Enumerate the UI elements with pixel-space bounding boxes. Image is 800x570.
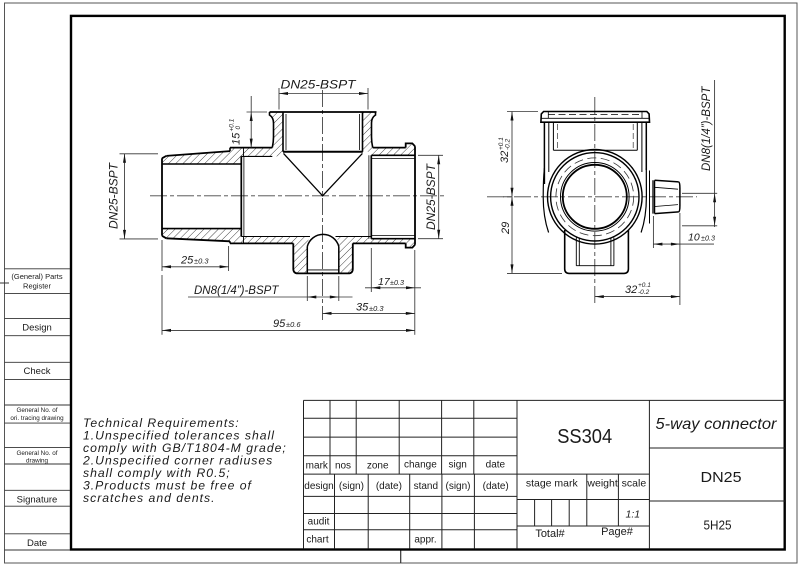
svg-text:design: design: [304, 481, 333, 492]
svg-text:Design: Design: [22, 323, 52, 334]
svg-text:35: 35: [356, 302, 369, 314]
svg-text:stand: stand: [414, 481, 438, 492]
svg-text:1:1: 1:1: [625, 509, 640, 521]
svg-text:sign: sign: [449, 460, 467, 471]
svg-text:0: 0: [235, 126, 242, 130]
svg-text:±0.3: ±0.3: [701, 234, 715, 243]
svg-text:±0.3: ±0.3: [194, 257, 209, 266]
svg-text:DN25: DN25: [701, 469, 742, 486]
svg-text:Register: Register: [23, 282, 51, 291]
svg-text:±0.6: ±0.6: [286, 320, 301, 329]
svg-text:(sign): (sign): [339, 481, 364, 492]
svg-text:stage mark: stage mark: [526, 478, 579, 490]
svg-text:nos: nos: [335, 461, 351, 472]
svg-text:DN8(1/4”)-BSPT: DN8(1/4”)-BSPT: [701, 86, 713, 171]
svg-text:Total#: Total#: [535, 528, 565, 540]
svg-text:mark: mark: [306, 461, 329, 472]
svg-text:29: 29: [500, 222, 512, 235]
svg-text:zone: zone: [367, 461, 389, 472]
svg-text:25: 25: [180, 255, 194, 267]
svg-text:10: 10: [688, 232, 700, 244]
svg-text:ori. tracing drawing: ori. tracing drawing: [10, 415, 64, 422]
svg-text:chart: chart: [306, 535, 328, 546]
svg-text:32: 32: [625, 284, 637, 296]
svg-text:±0.3: ±0.3: [390, 278, 404, 287]
svg-text:DN25-BSPT: DN25-BSPT: [281, 80, 357, 92]
svg-text:change: change: [404, 460, 437, 471]
svg-text:Signature: Signature: [17, 495, 58, 506]
svg-text:+0.1: +0.1: [638, 282, 651, 289]
svg-text:5-way connector: 5-way connector: [656, 416, 778, 433]
svg-text:General No. of: General No. of: [17, 407, 58, 414]
svg-text:DN8(1/4”)-BSPT: DN8(1/4”)-BSPT: [194, 285, 279, 297]
svg-text:-0.2: -0.2: [505, 138, 512, 150]
svg-text:15: 15: [231, 132, 243, 145]
svg-text:weight: weight: [586, 478, 617, 490]
svg-text:Date: Date: [27, 538, 47, 549]
svg-text:General No. of: General No. of: [17, 450, 58, 457]
svg-text:DN25-BSPT: DN25-BSPT: [426, 163, 438, 230]
svg-text:audit: audit: [308, 517, 330, 528]
svg-text:(sign): (sign): [445, 481, 470, 492]
svg-text:(date): (date): [483, 481, 509, 492]
svg-text:5H25: 5H25: [704, 518, 732, 533]
svg-text:DN25-BSPT: DN25-BSPT: [108, 162, 120, 229]
svg-text:SS304: SS304: [557, 426, 612, 448]
svg-text:-0.2: -0.2: [638, 289, 650, 296]
svg-text:(date): (date): [376, 481, 402, 492]
svg-text:32: 32: [499, 151, 511, 163]
svg-text:±0.3: ±0.3: [369, 304, 384, 313]
svg-text:scale: scale: [622, 478, 647, 490]
svg-text:Page#: Page#: [601, 526, 634, 538]
svg-text:Check: Check: [24, 366, 51, 377]
svg-text:17: 17: [378, 276, 391, 288]
svg-text:appr.: appr.: [414, 535, 436, 546]
svg-text:date: date: [486, 460, 506, 471]
svg-text:drawing: drawing: [26, 458, 49, 465]
svg-text:scratches and dents.: scratches and dents.: [83, 491, 215, 505]
svg-text:95: 95: [273, 318, 286, 330]
svg-text:(General) Parts: (General) Parts: [11, 272, 63, 281]
